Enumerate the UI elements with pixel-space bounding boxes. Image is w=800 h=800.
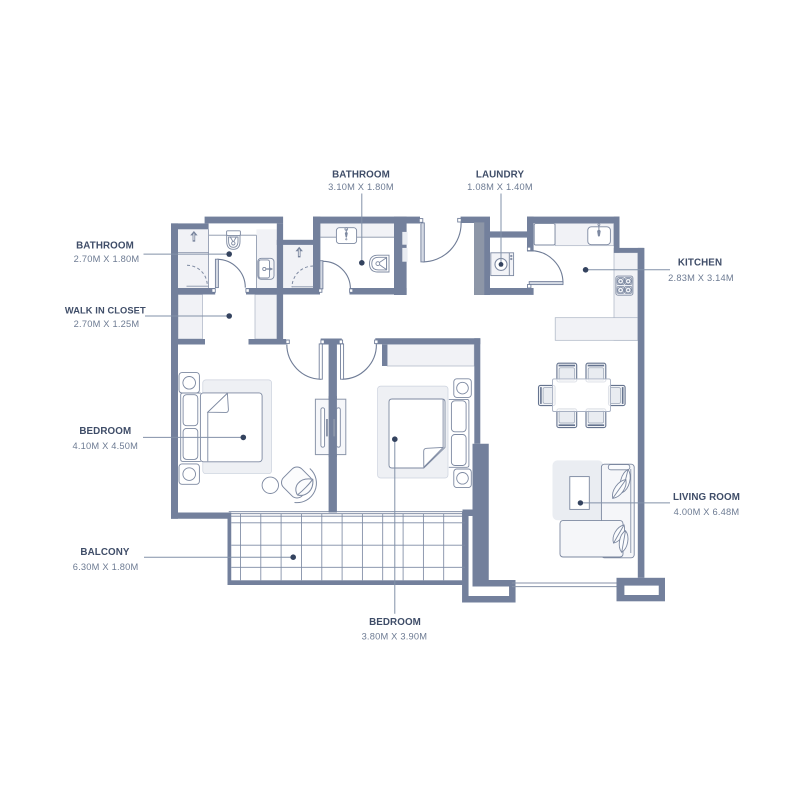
svg-text:2.70M X 1.80M: 2.70M X 1.80M: [74, 254, 140, 264]
svg-text:4.10M X 4.50M: 4.10M X 4.50M: [72, 441, 138, 451]
svg-text:BEDROOM: BEDROOM: [369, 617, 421, 628]
svg-text:3.80M X 3.90M: 3.80M X 3.90M: [362, 632, 428, 642]
svg-text:1.08M X 1.40M: 1.08M X 1.40M: [467, 182, 533, 192]
svg-text:3.10M X 1.80M: 3.10M X 1.80M: [328, 182, 394, 192]
svg-text:BATHROOM: BATHROOM: [76, 241, 134, 252]
svg-text:BALCONY: BALCONY: [80, 547, 130, 558]
svg-text:BATHROOM: BATHROOM: [332, 169, 390, 180]
svg-text:LAUNDRY: LAUNDRY: [476, 169, 525, 180]
svg-text:2.70M X 1.25M: 2.70M X 1.25M: [74, 319, 140, 329]
svg-text:KITCHEN: KITCHEN: [678, 258, 722, 269]
svg-text:4.00M X 6.48M: 4.00M X 6.48M: [674, 507, 740, 517]
svg-text:LIVING ROOM: LIVING ROOM: [673, 492, 740, 503]
svg-text:WALK IN CLOSET: WALK IN CLOSET: [65, 306, 146, 316]
svg-text:BEDROOM: BEDROOM: [79, 426, 131, 437]
svg-text:6.30M X 1.80M: 6.30M X 1.80M: [73, 562, 139, 572]
svg-text:2.83M X 3.14M: 2.83M X 3.14M: [668, 273, 734, 283]
